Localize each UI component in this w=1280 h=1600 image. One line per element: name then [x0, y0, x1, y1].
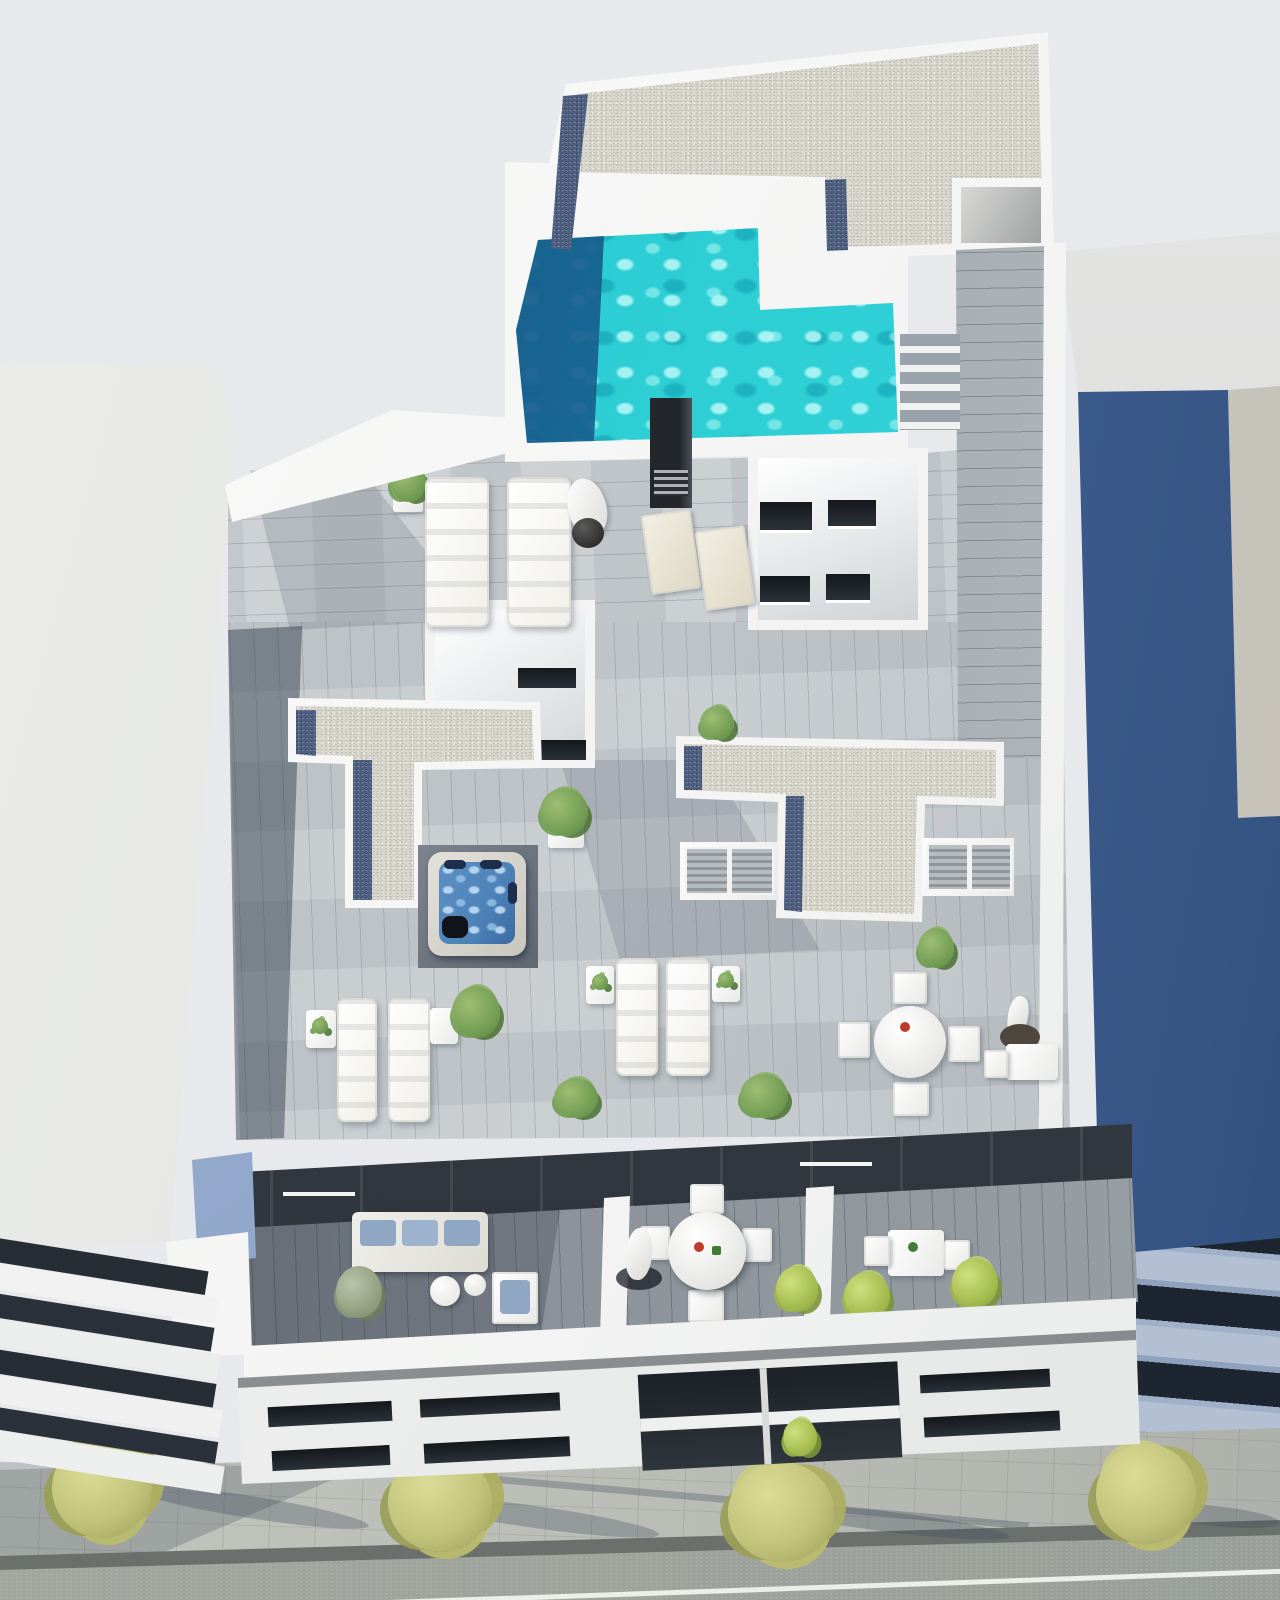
- louvered-shutter: [685, 847, 729, 895]
- sun-lounger: [425, 477, 489, 627]
- bistro-chair: [984, 1050, 1008, 1078]
- jacuzzi-seat: [442, 916, 468, 938]
- table-decor-red: [900, 1022, 910, 1032]
- jacuzzi-headrest: [508, 882, 517, 904]
- street-tree: [728, 1462, 834, 1562]
- sun-lounger: [666, 958, 710, 1076]
- sofa-cushion: [402, 1220, 438, 1246]
- sun-lounger: [388, 998, 430, 1122]
- dining-chair: [690, 1184, 724, 1214]
- table-plant: [592, 974, 608, 990]
- window: [826, 574, 870, 603]
- round-dining-table: [668, 1212, 746, 1290]
- sun-lounger: [337, 998, 377, 1122]
- louvered-shutter: [730, 847, 774, 895]
- window: [760, 576, 810, 605]
- dining-chair: [688, 1290, 724, 1322]
- dining-chair: [838, 1022, 870, 1058]
- armchair-cushion: [500, 1280, 530, 1314]
- stairwell-interior: [961, 187, 1041, 243]
- potted-plant: [700, 706, 734, 740]
- vent-chimney: [650, 398, 692, 508]
- glass-door-rail: [283, 1192, 355, 1196]
- architectural-render: [0, 0, 1280, 1600]
- window: [760, 502, 812, 533]
- bistro-table: [888, 1230, 944, 1276]
- facade-recessed-opening: [638, 1361, 903, 1470]
- louvered-shutter: [970, 843, 1012, 891]
- jacuzzi-headrest: [480, 860, 502, 869]
- facade-plant: [782, 1418, 818, 1458]
- table-decor-green: [712, 1246, 721, 1255]
- outdoor-sofa: [352, 1212, 488, 1272]
- table-decor-green: [908, 1242, 918, 1252]
- window: [828, 500, 876, 529]
- potted-plant: [740, 1074, 788, 1118]
- lightwell-core: [748, 448, 928, 630]
- coffee-table: [430, 1276, 460, 1306]
- table-decor-red: [694, 1242, 704, 1252]
- balcony-plant: [776, 1266, 818, 1312]
- window-slot: [518, 668, 576, 688]
- deck-stairs: [900, 334, 960, 430]
- potted-plant: [918, 928, 954, 968]
- table-plant: [312, 1018, 328, 1034]
- table-plant: [718, 972, 734, 988]
- sofa-cushion: [360, 1220, 396, 1246]
- dining-chair: [742, 1228, 772, 1262]
- louver-box: [922, 838, 1014, 896]
- sofa-cushion: [444, 1220, 480, 1246]
- jacuzzi-headrest: [444, 860, 466, 869]
- street-tree: [1096, 1444, 1196, 1544]
- dining-chair: [948, 1026, 980, 1062]
- coffee-table: [464, 1274, 486, 1296]
- vent-grille: [654, 470, 688, 496]
- sun-lounger: [616, 958, 658, 1076]
- bistro-table: [1006, 1044, 1058, 1080]
- round-dining-table: [874, 1006, 946, 1078]
- parasol-base: [572, 518, 604, 548]
- balcony-plant: [952, 1258, 998, 1308]
- potted-plant: [540, 788, 588, 836]
- roof-stairwell-opening: [952, 178, 1050, 252]
- dining-chair: [893, 1082, 929, 1116]
- bistro-chair: [864, 1236, 890, 1266]
- potted-plant: [554, 1078, 598, 1118]
- potted-plant: [452, 986, 500, 1038]
- louvered-shutter: [927, 843, 969, 891]
- jacuzzi-hot-tub: [428, 852, 526, 956]
- sun-lounger: [507, 477, 571, 627]
- balcony-plant: [336, 1266, 382, 1318]
- facade-slab-strip: [640, 1405, 900, 1432]
- louver-box: [680, 842, 778, 900]
- glass-door-rail: [800, 1162, 872, 1166]
- dining-chair: [893, 972, 927, 1004]
